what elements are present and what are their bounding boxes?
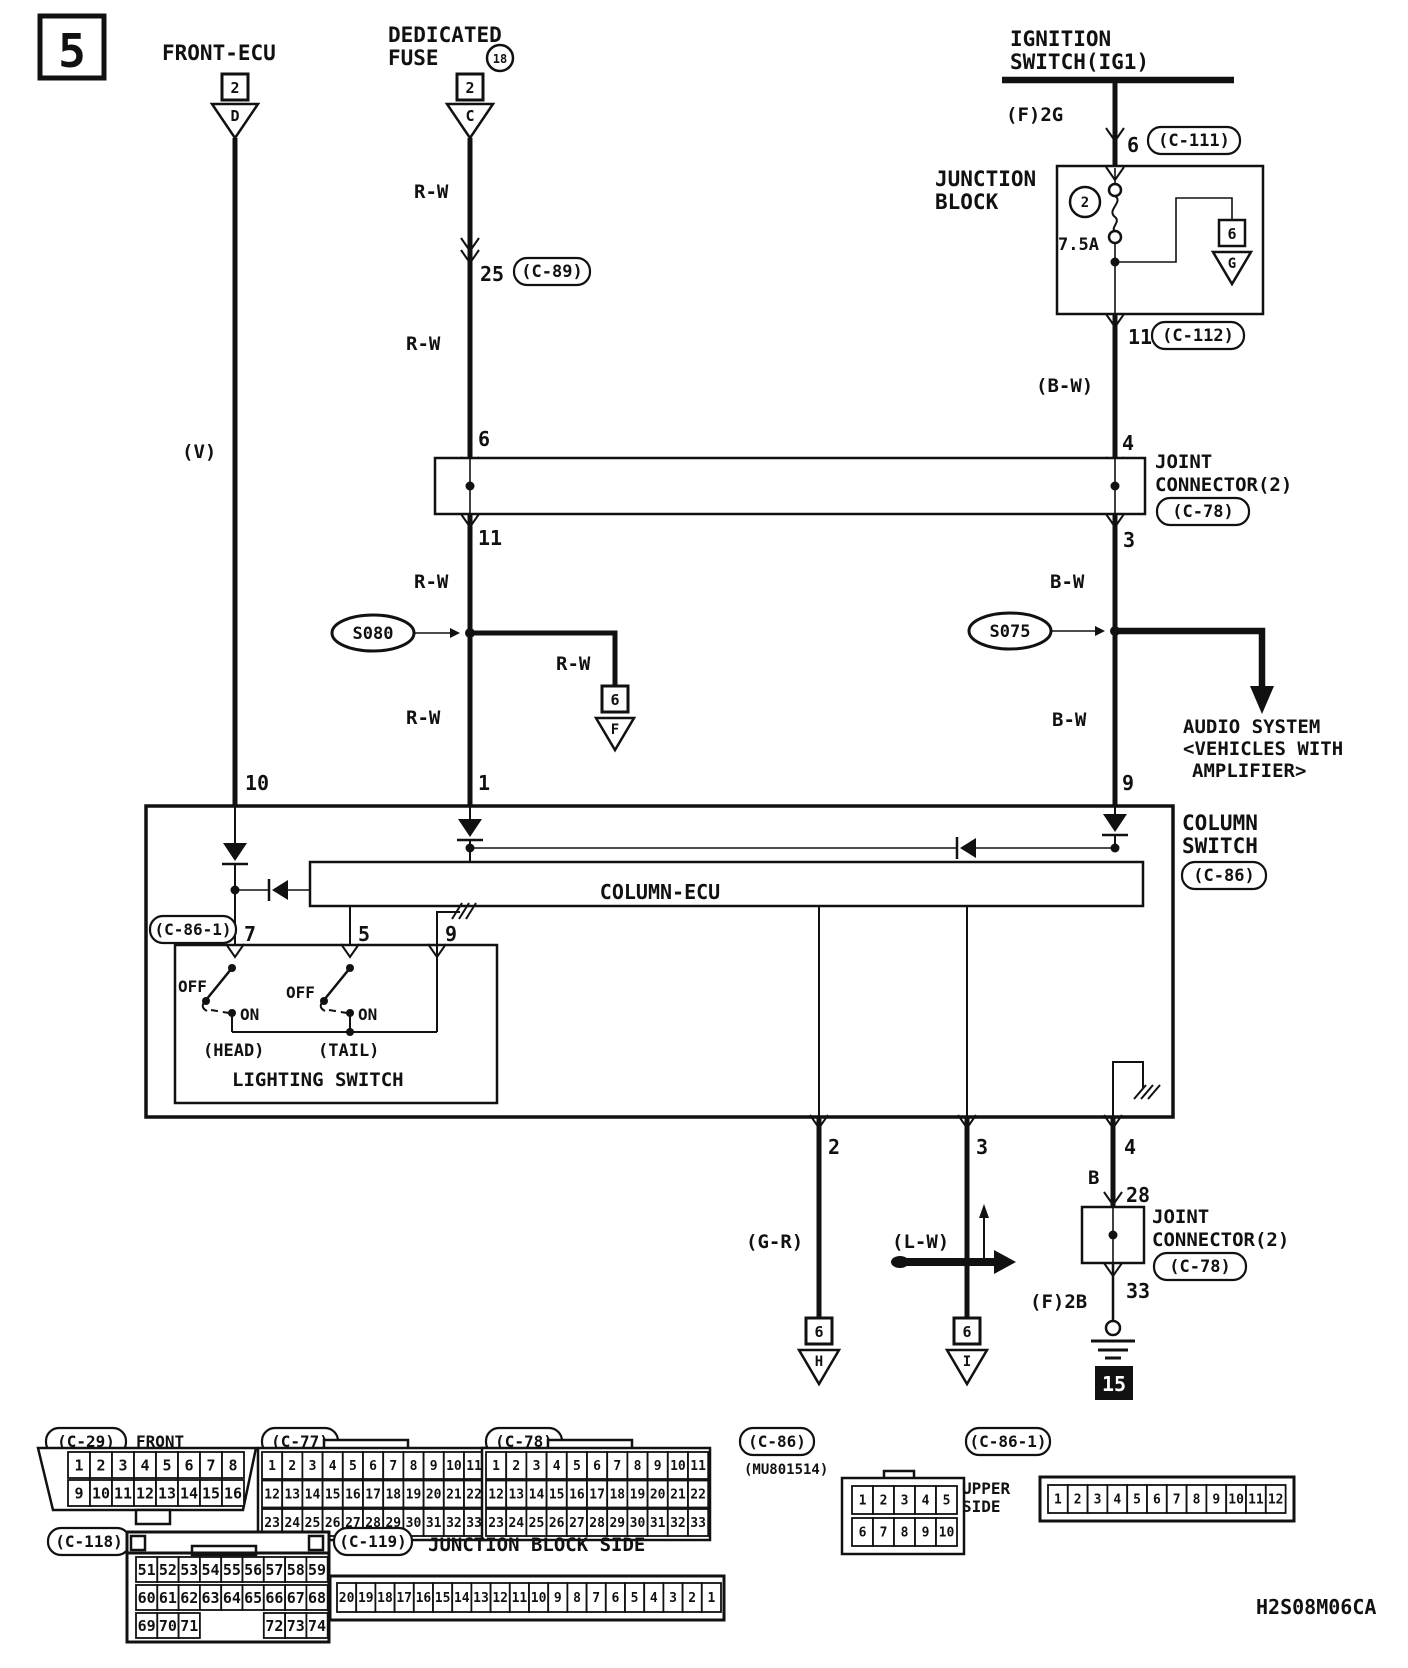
pin-number: 30 (630, 1516, 646, 1531)
pin-number: 8 (901, 1526, 909, 1541)
pin-number: 4 (140, 1456, 149, 1474)
pin-number: 21 (670, 1488, 686, 1503)
pin-number: 12 (492, 1591, 508, 1606)
tail-on-label: ON (358, 1005, 377, 1024)
pin-number: 69 (138, 1617, 156, 1635)
pin-number: 13 (473, 1591, 489, 1606)
pin-number: 13 (508, 1488, 524, 1503)
pin-number: 32 (670, 1516, 686, 1531)
circuit-f2g: (F)2G (1006, 104, 1063, 126)
connector-letter: F (611, 722, 619, 738)
pin-number: 11 (114, 1484, 132, 1502)
wire-ignition: (B-W) 4 3 B-W B-W 9 (1036, 314, 1135, 818)
pin-number: 13 (284, 1488, 300, 1503)
pin-number: 2 (880, 1494, 888, 1509)
c86-label: (C-86) (1193, 866, 1254, 886)
circuit-number: 2 (1081, 195, 1089, 211)
head-off-label: OFF (178, 977, 207, 996)
audio-system-branch: AUDIO SYSTEM <VEHICLES WITH AMPLIFIER> (1115, 631, 1343, 782)
pin-number: 7 (206, 1456, 215, 1474)
arrowhead-icon (450, 628, 460, 638)
pin-4-jc1: 4 (1122, 431, 1134, 455)
pin-number: 4 (650, 1591, 658, 1606)
pin-number: 5 (1133, 1493, 1141, 1508)
pin-number: 4 (329, 1459, 337, 1474)
pin-7: 7 (244, 922, 256, 946)
pin-number: 12 (136, 1484, 154, 1502)
pin-number: 12 (1268, 1493, 1284, 1508)
head-label: (HEAD) (203, 1041, 264, 1061)
pin-number: 15 (549, 1488, 565, 1503)
up-arrow-icon (979, 1204, 989, 1218)
pin-number: 24 (508, 1516, 524, 1531)
pin-number: 24 (284, 1516, 300, 1531)
pin-number: 3 (1094, 1493, 1102, 1508)
pin-number: 10 (1228, 1493, 1244, 1508)
junction-dot (1111, 482, 1120, 491)
lighting-switch: OFF ON OFF ON (HEAD) (TAIL) LIGHTING SWI… (175, 944, 497, 1103)
pin-number: 6 (859, 1526, 867, 1541)
pin-number: 10 (446, 1459, 462, 1474)
pinout-c86-1: (C-86-1) UPPER SIDE 123456789101112 (962, 1428, 1294, 1521)
pin-number: 9 (554, 1591, 562, 1606)
pin-number: 1 (707, 1591, 715, 1606)
pin-number: 57 (265, 1561, 283, 1579)
pin-4: 4 (1124, 1135, 1136, 1159)
wire-color-rw-3: R-W (414, 571, 449, 593)
pin-number: 72 (265, 1617, 283, 1635)
wire-color-rw-4: R-W (556, 653, 591, 675)
pin-number: 11 (1248, 1493, 1264, 1508)
pin-number: 6 (593, 1459, 601, 1474)
joint-connector-1: JOINT CONNECTOR(2) (C-78) (435, 451, 1292, 525)
pin-number: 10 (531, 1591, 547, 1606)
joint-connector-box (435, 458, 1145, 514)
jc2-label-1: JOINT (1152, 1206, 1209, 1228)
pin-number: 8 (228, 1456, 237, 1474)
pin-number: 54 (202, 1561, 220, 1579)
pin-number: 9 (1212, 1493, 1220, 1508)
pin-number: 70 (159, 1617, 177, 1635)
junction-block: JUNCTION BLOCK 2 7.5A 6 G 11 (C-112) (935, 166, 1263, 349)
pin-number: 65 (244, 1589, 262, 1607)
wiring-diagram-page: 5 FRONT-ECU 2 D (V) 10 DEDICATED FUSE 18… (0, 0, 1408, 1668)
lighting-switch-label: LIGHTING SWITCH (232, 1069, 404, 1091)
pin-number: 15 (435, 1591, 451, 1606)
wire-front-ecu: (V) 10 (182, 138, 269, 818)
pin-number: 33 (466, 1516, 482, 1531)
circuit-f2b: (F)2B (1030, 1291, 1087, 1313)
pin-number: 7 (880, 1526, 888, 1541)
pin-number: 6 (184, 1456, 193, 1474)
pin-number: 17 (396, 1591, 412, 1606)
pin-number: 53 (180, 1561, 198, 1579)
pin-3: 3 (976, 1135, 988, 1159)
ground-terminal-icon (1106, 1321, 1120, 1335)
pin-number: 16 (224, 1484, 242, 1502)
pin-number: 7 (592, 1591, 600, 1606)
pin-number: 52 (159, 1561, 177, 1579)
pin-number: 30 (406, 1516, 422, 1531)
pin-number: 18 (377, 1591, 393, 1606)
wire-color-b: B (1088, 1167, 1099, 1189)
pinout-c119: (C-119) JUNCTION BLOCK SIDE 201918171615… (330, 1528, 724, 1620)
pin-number: 19 (630, 1488, 646, 1503)
c119-label: (C-119) (339, 1532, 406, 1551)
pin-number: 26 (325, 1516, 341, 1531)
pin-number: 4 (922, 1494, 930, 1509)
pin-number: 4 (1113, 1493, 1121, 1508)
pin-number: 20 (426, 1488, 442, 1503)
audio-label-2: <VEHICLES WITH (1183, 738, 1343, 760)
pin-number: 6 (611, 1591, 619, 1606)
c118-label: (C-118) (55, 1532, 122, 1551)
pin-1: 1 (478, 771, 490, 795)
arrowhead-icon (1095, 626, 1105, 636)
terminal-i: 6 I (947, 1318, 987, 1384)
pin-number: 16 (345, 1488, 361, 1503)
pin-number: 19 (406, 1488, 422, 1503)
pin-number: 17 (589, 1488, 605, 1503)
pin-number: 7 (1173, 1493, 1181, 1508)
splice-id: S080 (353, 624, 394, 644)
arrowhead-icon (1250, 686, 1274, 714)
jc1-label-1: JOINT (1155, 451, 1212, 473)
pin-number: 14 (305, 1488, 321, 1503)
wire-color-bw-paren: (B-W) (1036, 375, 1093, 397)
pin-number: 66 (265, 1589, 283, 1607)
pinout-c118: (C-118) 51525354555657585960616263646566… (48, 1528, 329, 1642)
c78-label: (C-78) (1172, 502, 1233, 522)
pin-number: 11 (512, 1591, 528, 1606)
pin-number: 2 (512, 1459, 520, 1474)
c112-label: (C-112) (1162, 326, 1234, 346)
fuse-terminal-icon (1109, 184, 1121, 196)
pin-number: 5 (631, 1591, 639, 1606)
page-number: 5 (58, 24, 86, 78)
pin-number: 2 (688, 1591, 696, 1606)
connector-letter: G (1228, 256, 1236, 272)
wire-color-bw-1: B-W (1050, 571, 1085, 593)
drawing-code: H2S08M06CA (1256, 1595, 1376, 1619)
page-number-box: 5 (40, 16, 104, 78)
pin-6-c111: 6 (1127, 133, 1139, 157)
splice-s075: S075 (969, 613, 1120, 649)
head-on-label: ON (240, 1005, 259, 1024)
pin-number: 10 (670, 1459, 686, 1474)
pin-number: 13 (158, 1484, 176, 1502)
pin-number: 16 (569, 1488, 585, 1503)
pin-number: 29 (609, 1516, 625, 1531)
pin-number: 1 (859, 1494, 867, 1509)
c86-1-label: (C-86-1) (154, 920, 231, 939)
column-ecu-label: COLUMN-ECU (600, 880, 720, 904)
pin-number: 3 (533, 1459, 541, 1474)
pin-count: 6 (1227, 225, 1236, 243)
ignition-switch: IGNITION SWITCH(IG1) (F)2G 6 (C-111) (1002, 27, 1240, 168)
dedicated-fuse: DEDICATED FUSE 18 2 C (388, 23, 513, 138)
fuse-number: 18 (493, 52, 507, 66)
front-ecu-label: FRONT-ECU (162, 41, 276, 65)
jc2-label-2: CONNECTOR(2) (1152, 1229, 1289, 1251)
pin-number: 3 (901, 1494, 909, 1509)
splice-id: S075 (990, 622, 1031, 642)
pin-number: 8 (1193, 1493, 1201, 1508)
pin-number: 8 (410, 1459, 418, 1474)
wire-color-bw-2: B-W (1052, 709, 1087, 731)
pin-number: 5 (349, 1459, 357, 1474)
pin-number: 3 (118, 1456, 127, 1474)
pin-number: 33 (690, 1516, 706, 1531)
pin-number: 22 (466, 1488, 482, 1503)
pin-number: 9 (922, 1526, 930, 1541)
c86-1-note-1: UPPER (962, 1479, 1011, 1498)
c86-label: (C-86) (748, 1432, 806, 1451)
connector-letter: D (230, 107, 239, 125)
pin-11-jc1: 11 (478, 526, 502, 550)
pin-number: 6 (1153, 1493, 1161, 1508)
pin-number: 23 (264, 1516, 280, 1531)
pin-number: 67 (287, 1589, 305, 1607)
pin-number: 60 (138, 1589, 156, 1607)
pin-number: 59 (308, 1561, 326, 1579)
pin-number: 63 (202, 1589, 220, 1607)
pin-number: 12 (488, 1488, 504, 1503)
pin-number: 7 (613, 1459, 621, 1474)
pin-number: 56 (244, 1561, 262, 1579)
right-arrow-icon (994, 1250, 1016, 1274)
pin-number: 51 (138, 1561, 156, 1579)
pin-number: 25 (529, 1516, 545, 1531)
fuse-terminal-icon (1109, 231, 1121, 243)
pin-number: 55 (223, 1561, 241, 1579)
pin-number: 3 (669, 1591, 677, 1606)
pin-count: 6 (814, 1323, 823, 1341)
pin-6-jc1: 6 (478, 427, 490, 451)
pin-number: 26 (549, 1516, 565, 1531)
wire-color-rw-1: R-W (414, 181, 449, 203)
terminal-h: 6 H (799, 1318, 839, 1384)
pin-number: 22 (690, 1488, 706, 1503)
c86-1-label: (C-86-1) (969, 1432, 1046, 1451)
pin-number: 2 (1074, 1493, 1082, 1508)
column-switch-label-2: SWITCH (1182, 834, 1258, 858)
column-switch-label-1: COLUMN (1182, 811, 1258, 835)
pin-number: 16 (416, 1591, 432, 1606)
pinout-c86: (C-86) (MU801514) 12345678910 (740, 1428, 964, 1554)
connector-letter: H (815, 1354, 823, 1370)
pin-number: 11 (690, 1459, 706, 1474)
jc1-label-2: CONNECTOR(2) (1155, 474, 1292, 496)
wire-color-rw-5: R-W (406, 707, 441, 729)
joint-connector-2: JOINT CONNECTOR(2) (C-78) 33 (F)2B (1030, 1206, 1289, 1313)
junction-dot (1109, 1231, 1118, 1240)
pin-number: 17 (365, 1488, 381, 1503)
pin-number: 19 (358, 1591, 374, 1606)
pin-number: 5 (943, 1494, 951, 1509)
pin-count: 6 (962, 1323, 971, 1341)
wire-color-rw-2: R-W (406, 333, 441, 355)
pin-number: 68 (308, 1589, 326, 1607)
pin-25: 25 (480, 262, 504, 286)
pin-33: 33 (1126, 1279, 1150, 1303)
wire-color-lw: (L-W) (892, 1231, 949, 1253)
pin-3-jc1: 3 (1123, 528, 1135, 552)
pin-number: 1 (268, 1459, 276, 1474)
pin-number: 1 (74, 1456, 83, 1474)
audio-label-1: AUDIO SYSTEM (1183, 716, 1320, 738)
pin-9-lighting: 9 (445, 922, 457, 946)
pin-number: 74 (308, 1617, 326, 1635)
pin-number: 8 (634, 1459, 642, 1474)
pin-number: 6 (369, 1459, 377, 1474)
pin-number: 11 (466, 1459, 482, 1474)
pin-number: 9 (74, 1484, 83, 1502)
pin-count: 6 (610, 691, 619, 709)
pin-number: 20 (650, 1488, 666, 1503)
c78-label: (C-78) (1169, 1257, 1230, 1277)
pin-number: 25 (305, 1516, 321, 1531)
pin-number: 58 (287, 1561, 305, 1579)
pin-number: 1 (492, 1459, 500, 1474)
audio-label-3: AMPLIFIER> (1192, 760, 1306, 782)
ignition-label-1: IGNITION (1010, 27, 1111, 51)
pin-number: 71 (180, 1617, 198, 1635)
tail-label: (TAIL) (318, 1041, 379, 1061)
pin-count: 2 (465, 79, 474, 97)
pin-number: 5 (162, 1456, 171, 1474)
pinout-c78: (C-78) 123456789101112131415161718192021… (482, 1428, 710, 1540)
fuse-rating: 7.5A (1058, 235, 1099, 255)
c119-note: JUNCTION BLOCK SIDE (428, 1534, 645, 1556)
pin-number: 18 (609, 1488, 625, 1503)
pin-number: 32 (446, 1516, 462, 1531)
pin-number: 27 (569, 1516, 585, 1531)
pin-number: 5 (573, 1459, 581, 1474)
c86-1-note-2: SIDE (962, 1497, 1001, 1516)
pin-number: 64 (223, 1589, 241, 1607)
pin-number: 31 (650, 1516, 666, 1531)
ground-number: 15 (1102, 1372, 1126, 1396)
pin-number: 31 (426, 1516, 442, 1531)
pin-number: 61 (159, 1589, 177, 1607)
pin-number: 10 (939, 1526, 955, 1541)
pin-number: 15 (202, 1484, 220, 1502)
pin-number: 2 (96, 1456, 105, 1474)
pin-number: 3 (309, 1459, 317, 1474)
pin-number: 14 (180, 1484, 198, 1502)
tail-off-label: OFF (286, 983, 315, 1002)
pin-number: 62 (180, 1589, 198, 1607)
junction-label-2: BLOCK (935, 190, 999, 214)
pin-number: 9 (654, 1459, 662, 1474)
column-switch: COLUMN SWITCH (C-86) COLUMN-ECU (146, 806, 1266, 1128)
front-ecu: FRONT-ECU 2 D (162, 41, 276, 138)
junction-label-1: JUNCTION (935, 167, 1036, 191)
pin-number: 12 (264, 1488, 280, 1503)
pin-number: 14 (454, 1591, 470, 1606)
pinout-c29: (C-29) FRONT SIDE 1234567891011121314151… (38, 1428, 256, 1524)
pinout-c77: (C-77) 123456789101112131415161718192021… (258, 1428, 486, 1540)
pin-28: 28 (1126, 1183, 1150, 1207)
pin-number: 14 (529, 1488, 545, 1503)
column-ecu: COLUMN-ECU (310, 862, 1143, 906)
connector-letter: I (963, 1354, 971, 1370)
dedicated-label-2: FUSE (388, 46, 439, 70)
pin-number: 7 (389, 1459, 397, 1474)
splice-s080: S080 R-W 6 F (332, 615, 634, 750)
pin-number: 15 (325, 1488, 341, 1503)
pin-number: 20 (339, 1591, 355, 1606)
pin-number: 21 (446, 1488, 462, 1503)
junction-dot (466, 482, 475, 491)
pin-number: 1 (1054, 1493, 1062, 1508)
pin-number: 2 (288, 1459, 296, 1474)
c111-label: (C-111) (1158, 131, 1230, 151)
wire-color-gr: (G-R) (746, 1231, 803, 1253)
pin-11-c112: 11 (1128, 325, 1152, 349)
c86-part-number: (MU801514) (744, 1462, 828, 1478)
pin-9: 9 (1122, 771, 1134, 795)
pin-number: 73 (287, 1617, 305, 1635)
pin-number: 18 (385, 1488, 401, 1503)
pin-5: 5 (358, 922, 370, 946)
pin-number: 28 (589, 1516, 605, 1531)
c89-label: (C-89) (521, 262, 582, 282)
pin-number: 23 (488, 1516, 504, 1531)
pin-number: 10 (92, 1484, 110, 1502)
pin-number: 8 (573, 1591, 581, 1606)
pin-2: 2 (828, 1135, 840, 1159)
wire-color-v: (V) (182, 441, 216, 463)
pin-count: 2 (230, 79, 239, 97)
pin-number: 4 (553, 1459, 561, 1474)
pin-number: 9 (430, 1459, 438, 1474)
pin-10: 10 (245, 771, 269, 795)
ignition-label-2: SWITCH(IG1) (1010, 50, 1149, 74)
connector-letter: C (465, 107, 474, 125)
dedicated-label-1: DEDICATED (388, 23, 502, 47)
